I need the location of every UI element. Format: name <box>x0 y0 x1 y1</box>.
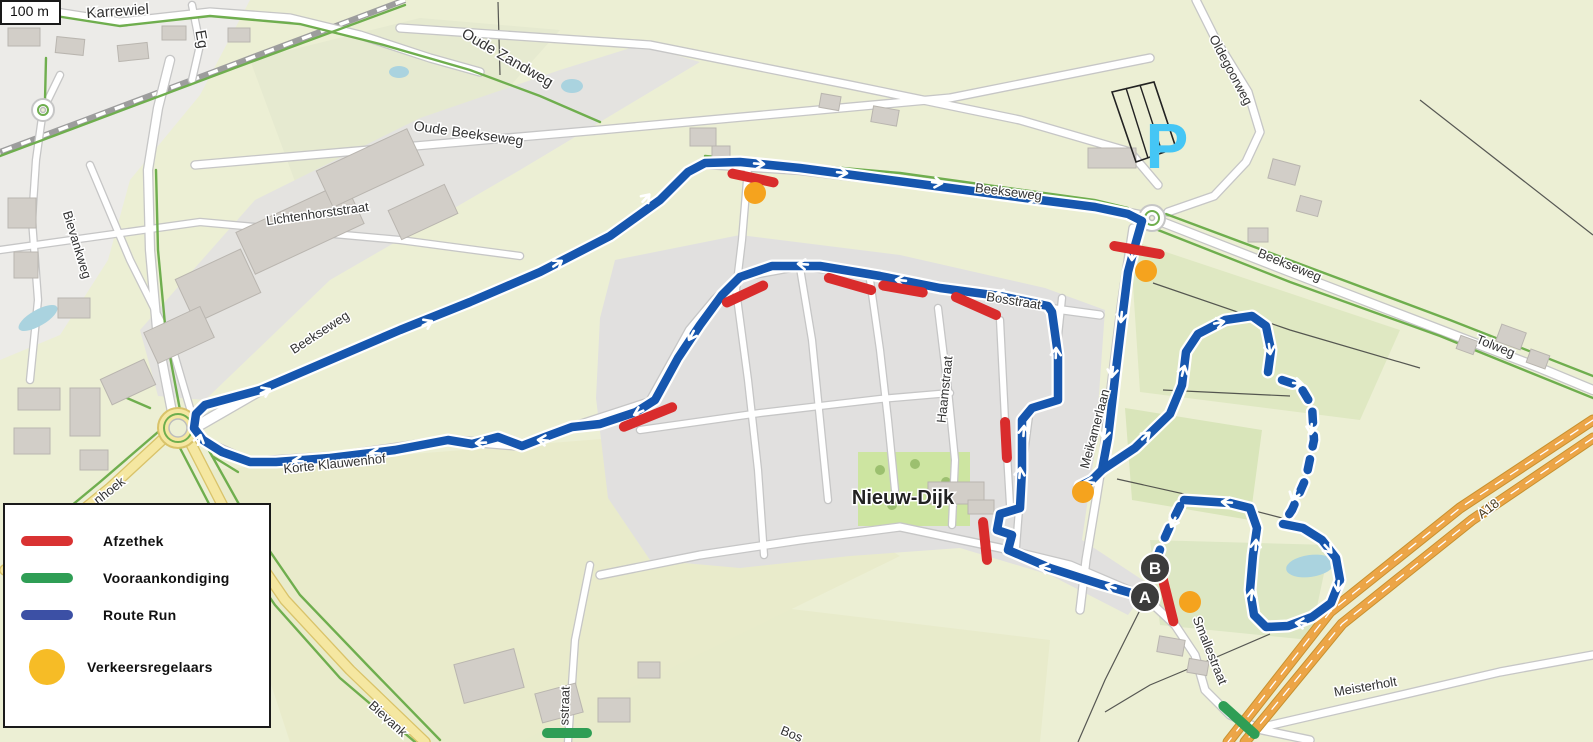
building <box>1088 148 1136 168</box>
finish-marker-b-label: B <box>1149 559 1161 578</box>
pond <box>561 79 583 93</box>
legend-item-route-run: Route Run <box>21 607 269 623</box>
building <box>968 500 994 514</box>
building <box>228 28 250 42</box>
building <box>18 388 60 410</box>
greenway <box>45 58 46 100</box>
building <box>598 698 630 722</box>
building <box>8 28 40 46</box>
legend-label-verkeersregelaars: Verkeersregelaars <box>87 659 213 675</box>
legend-swatch-verkeersregelaars <box>29 649 65 685</box>
legend-label-afzethek: Afzethek <box>103 533 164 549</box>
street-label: Eg <box>191 29 211 50</box>
building <box>14 252 38 278</box>
building <box>8 198 36 228</box>
verkeersregelaar-dot <box>1179 591 1201 613</box>
verkeersregelaar-dot <box>744 182 766 204</box>
roundabout-island <box>41 108 46 113</box>
building <box>14 428 50 454</box>
legend-item-vooraankondiging: Vooraankondiging <box>21 570 269 586</box>
legend-item-verkeersregelaars: Verkeersregelaars <box>21 649 269 685</box>
legend-label-route-run: Route Run <box>103 607 176 623</box>
building <box>690 128 716 146</box>
start-marker-a-label: A <box>1139 588 1151 607</box>
building <box>162 26 186 40</box>
building <box>117 42 149 61</box>
afzethek-barrier <box>983 522 987 560</box>
verkeersregelaar-dot <box>1072 481 1094 503</box>
legend-label-vooraankondiging: Vooraankondiging <box>103 570 230 586</box>
building <box>58 298 90 318</box>
legend-swatch-vooraankondiging <box>21 573 73 583</box>
building <box>638 662 660 678</box>
scale-label: 100 m <box>10 3 49 19</box>
tree <box>875 465 885 475</box>
street-label: Nieuw-Dijk <box>852 487 955 509</box>
building <box>819 93 841 110</box>
pond <box>389 66 409 78</box>
afzethek-barrier <box>1005 422 1007 458</box>
map-stage[interactable]: KarrewielEgOude ZandwegOude BeeksewegLic… <box>0 0 1593 742</box>
building <box>1187 658 1209 675</box>
street-label: sstraat <box>556 686 572 726</box>
verkeersregelaar-dot <box>1135 260 1157 282</box>
building <box>55 37 85 56</box>
legend-item-afzethek: Afzethek <box>21 533 269 549</box>
parking-icon: P <box>1146 110 1189 182</box>
roundabout-island <box>1150 216 1155 221</box>
legend-box: AfzethekVooraankondigingRoute RunVerkeer… <box>3 503 271 728</box>
building <box>80 450 108 470</box>
afzethek-barrier <box>883 286 922 293</box>
legend-swatch-route-run <box>21 610 73 620</box>
roundabout <box>32 99 54 121</box>
legend-swatch-afzethek <box>21 536 73 546</box>
roundabout-island <box>169 419 187 437</box>
building <box>1248 228 1268 242</box>
building <box>70 388 100 436</box>
tree <box>910 459 920 469</box>
scale-bar: 100 m <box>0 0 61 25</box>
